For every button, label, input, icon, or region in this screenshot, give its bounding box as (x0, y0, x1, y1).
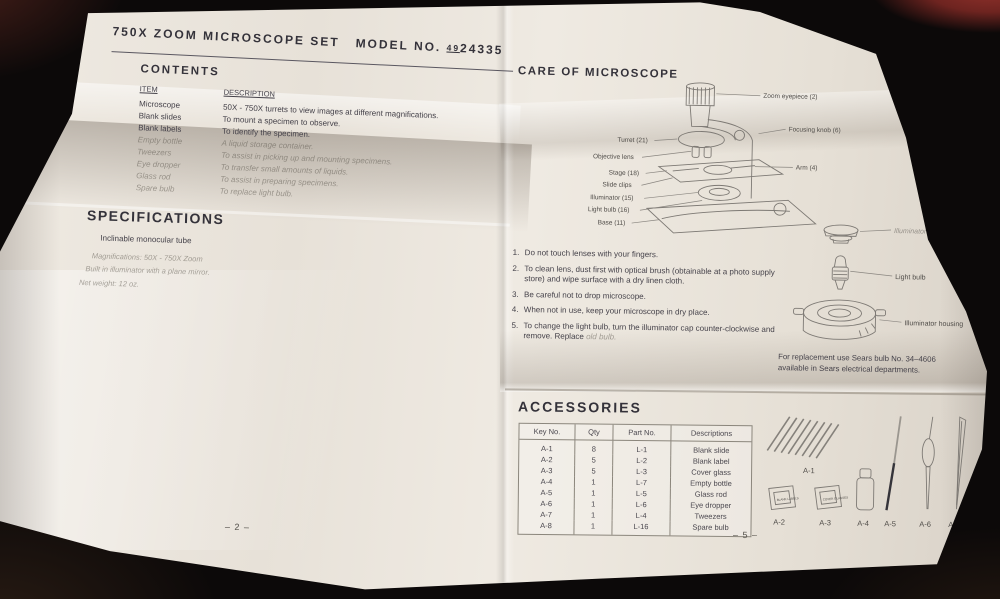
acc-header-part: Part No. (613, 425, 671, 442)
acc-header-key: Key No. (519, 424, 575, 441)
label-light-bulb: Light bulb (16) (588, 206, 630, 214)
step-number: 4. (512, 305, 524, 316)
tweezers-drawing (956, 417, 965, 509)
diagram-leader-lines (632, 92, 795, 226)
eye-dropper-drawing (921, 417, 934, 509)
bulb-labels: Illuminator cap Light bulb Illuminator h… (892, 228, 965, 328)
step-text-faint: old bulb. (586, 332, 616, 341)
acc-cell: Blank label (671, 455, 751, 467)
key-label-a3: A-3 (819, 518, 831, 527)
care-step: 2.To clean lens, dust first with optical… (512, 263, 780, 288)
acc-cell: A-2 (519, 454, 575, 466)
acc-cell: 5 (575, 454, 613, 465)
acc-cell: 5 (575, 465, 613, 476)
label-turret: Turret (21) (617, 137, 648, 145)
item-name: Glass rod (136, 171, 220, 184)
acc-cell: Blank slide (671, 441, 751, 456)
spare-bulb-drawing (976, 490, 986, 507)
acc-header-desc: Descriptions (671, 425, 751, 442)
acc-cell: 1 (574, 520, 612, 534)
acc-cell: 1 (575, 498, 613, 509)
acc-cell: A-4 (519, 476, 575, 488)
accessories-table: Key No. Qty Part No. Descriptions A-18L-… (517, 423, 752, 537)
model-prefix: 49 (446, 43, 460, 54)
acc-cell: 1 (575, 476, 613, 487)
blank-slides-drawing (767, 416, 839, 458)
specifications-heading: SPECIFICATIONS (87, 207, 417, 233)
item-name: Microscope (139, 99, 223, 112)
step-text: Do not touch lenses with your fingers. (525, 248, 659, 261)
label-focusing-knob: Focusing knob (6) (789, 126, 841, 134)
key-label-a7: A-7 (948, 520, 960, 529)
bulb-diagram: Illuminator cap Light bulb Illuminator h… (785, 220, 999, 356)
acc-header-qty: Qty (575, 424, 613, 440)
step-text: Be careful not to drop microscope. (524, 290, 646, 302)
step-number: 2. (512, 263, 524, 284)
acc-cell: A-6 (519, 498, 575, 510)
manual-sheet: 750X ZOOM MICROSCOPE SET MODEL NO. 49243… (0, 0, 1000, 599)
specifications-section: SPECIFICATIONS Inclinable monocular tube… (85, 207, 417, 297)
key-label-a5: A-5 (884, 519, 896, 528)
accessory-key-labels: A-1 A-2 A-3 A-4 A-5 A-6 A-7 A-8 (773, 466, 985, 530)
acc-cell: A-1 (519, 440, 575, 455)
page-number-right: – 5 – (733, 530, 758, 540)
step-number: 3. (512, 289, 524, 300)
blank-labels-box-text: BLANK LABELS (777, 496, 799, 502)
model-label: MODEL NO. (355, 36, 441, 54)
acc-cell: A-8 (518, 520, 574, 535)
contents-section: CONTENTS ITEM DESCRIPTION Microscope50X … (135, 63, 478, 208)
key-label-a1: A-1 (803, 466, 815, 475)
acc-cell: Cover glass (671, 466, 751, 478)
key-label-a8: A-8 (972, 520, 984, 529)
acc-cell: Tweezers (671, 510, 751, 522)
item-name: Empty bottle (137, 135, 221, 148)
step-text: When not in use, keep your microscope in… (524, 305, 710, 318)
item-name: Tweezers (137, 147, 221, 160)
photo-scene: 750X ZOOM MICROSCOPE SET MODEL NO. 49243… (0, 0, 1000, 599)
care-step: 1.Do not touch lenses with your fingers. (513, 248, 781, 263)
item-name: Blank slides (138, 111, 222, 124)
fold-highlight-bottom-left (0, 270, 480, 550)
care-step: 5.To change the light bulb, turn the ill… (511, 320, 779, 345)
item-name: Blank labels (138, 123, 222, 136)
label-arm: Arm (4) (796, 164, 818, 171)
model-number: 24335 (460, 41, 504, 57)
acc-cell: L-4 (613, 510, 671, 522)
acc-cell: L-6 (613, 499, 671, 511)
manual-title: 750X ZOOM MICROSCOPE SET MODEL NO. 49243… (112, 24, 504, 57)
bulb-line-art (793, 224, 887, 340)
acc-cell: 1 (575, 487, 613, 498)
acc-cell: A-3 (519, 465, 575, 477)
key-label-a6: A-6 (919, 520, 931, 529)
label-light-bulb-part: Light bulb (895, 274, 926, 282)
acc-cell: L-5 (613, 488, 671, 500)
microscope-diagram: Zoom eyepiece (2) Focusing knob (6) Arm … (551, 76, 899, 241)
accessories-illustrations: BLANK LABELS COVER GLASSES A-1 A-2 A-3 A… (756, 406, 998, 537)
diagram-labels: Zoom eyepiece (2) Focusing knob (6) Arm … (588, 89, 842, 231)
label-slide-clips: Slide clips (602, 181, 632, 189)
care-steps-list: 1.Do not touch lenses with your fingers.… (511, 248, 781, 351)
label-zoom-eyepiece: Zoom eyepiece (2) (763, 93, 817, 101)
cover-glasses-box-text: COVER GLASSES (823, 495, 849, 501)
acc-cell: 1 (575, 509, 613, 520)
acc-cell: A-7 (519, 509, 575, 521)
label-base: Base (11) (598, 219, 626, 227)
acc-cell: L-7 (613, 477, 671, 489)
step-text: To change the light bulb, turn the illum… (523, 321, 775, 341)
replacement-note: For replacement use Sears bulb No. 34–46… (778, 351, 996, 377)
glass-rod-drawing (886, 416, 900, 510)
care-step: 3.Be careful not to drop microscope. (512, 289, 780, 304)
acc-cell: L-3 (613, 466, 671, 478)
title-text: 750X ZOOM MICROSCOPE SET (112, 24, 340, 49)
fold-crease-right (505, 388, 1000, 395)
label-illuminator-housing: Illuminator housing (904, 320, 963, 328)
acc-cell: A-5 (519, 487, 575, 499)
label-stage: Stage (18) (609, 170, 639, 178)
label-illuminator: Illuminator (15) (590, 194, 633, 202)
empty-bottle-drawing (856, 469, 874, 510)
key-label-a2: A-2 (773, 518, 785, 527)
label-illuminator-cap: Illuminator cap (894, 228, 940, 236)
item-name: Eye dropper (137, 159, 221, 172)
acc-cell: L-16 (612, 521, 670, 536)
acc-cell: L-1 (613, 441, 671, 456)
acc-cell: Empty bottle (671, 477, 751, 489)
microscope-line-art (646, 82, 818, 236)
label-objective-lens: Objective lens (593, 153, 635, 161)
care-step: 4.When not in use, keep your microscope … (512, 305, 780, 320)
key-label-a4: A-4 (857, 519, 869, 528)
step-number: 5. (511, 320, 523, 341)
item-name: Spare bulb (136, 183, 220, 196)
page-number-left: – 2 – (225, 522, 250, 533)
step-number: 1. (513, 248, 525, 259)
acc-cell: L-2 (613, 455, 671, 467)
contents-col-item: ITEM (140, 84, 224, 97)
spec-line: Inclinable monocular tube (100, 234, 416, 252)
acc-cell: Eye dropper (671, 499, 751, 511)
accessories-heading: ACCESSORIES (518, 398, 642, 415)
step-text: To clean lens, dust first with optical b… (524, 264, 780, 289)
acc-cell: 8 (575, 440, 613, 454)
acc-cell: Glass rod (671, 488, 751, 500)
